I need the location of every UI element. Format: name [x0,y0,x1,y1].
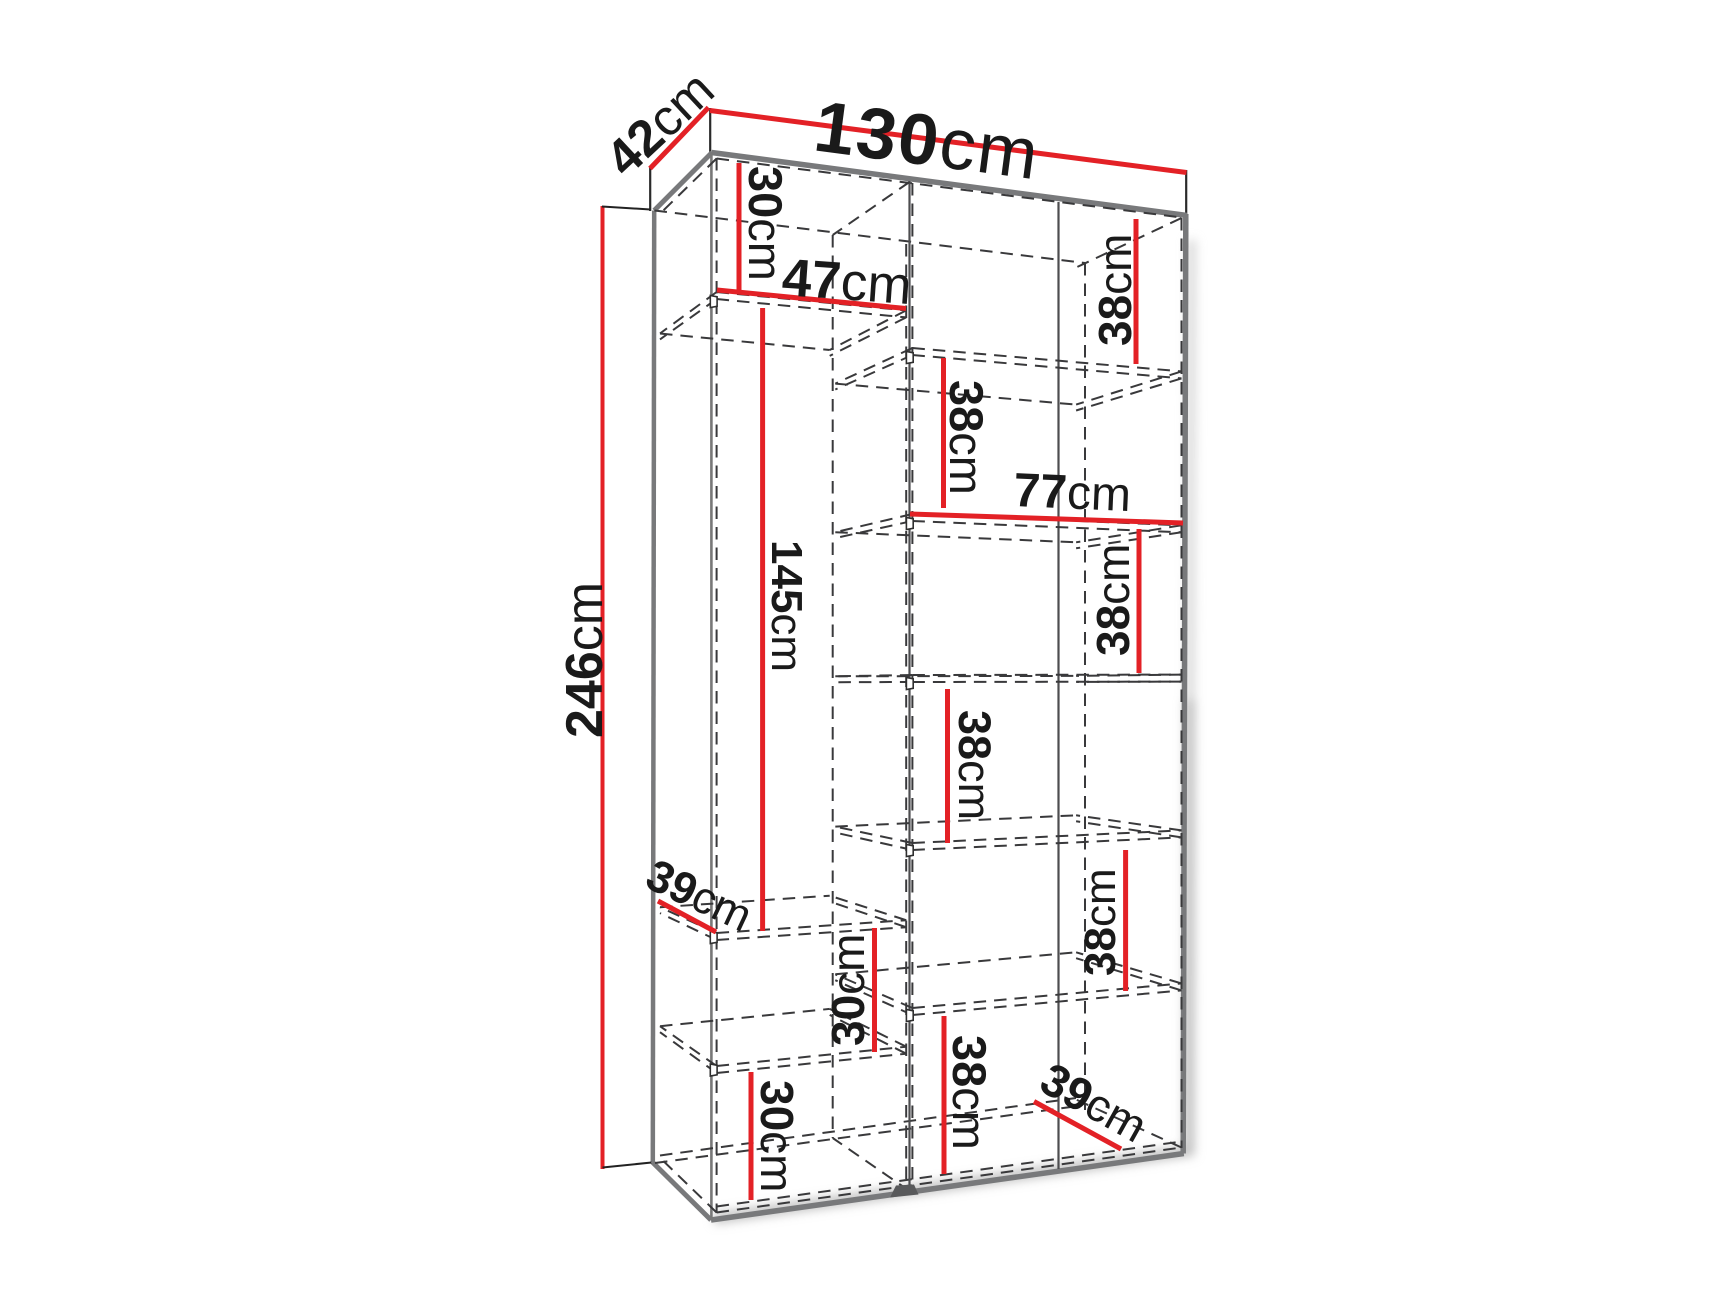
svg-text:47cm: 47cm [780,248,913,316]
svg-text:30cm: 30cm [751,1080,803,1193]
svg-text:38cm: 38cm [940,380,993,495]
svg-text:38cm: 38cm [1087,544,1139,657]
svg-text:38cm: 38cm [1089,234,1141,347]
svg-text:38cm: 38cm [949,710,1000,820]
svg-text:246cm: 246cm [556,582,614,738]
svg-text:145cm: 145cm [762,540,811,672]
svg-text:38cm: 38cm [943,1035,996,1150]
svg-text:77cm: 77cm [1013,464,1133,522]
svg-text:30cm: 30cm [822,934,874,1047]
svg-text:38cm: 38cm [1076,868,1125,976]
